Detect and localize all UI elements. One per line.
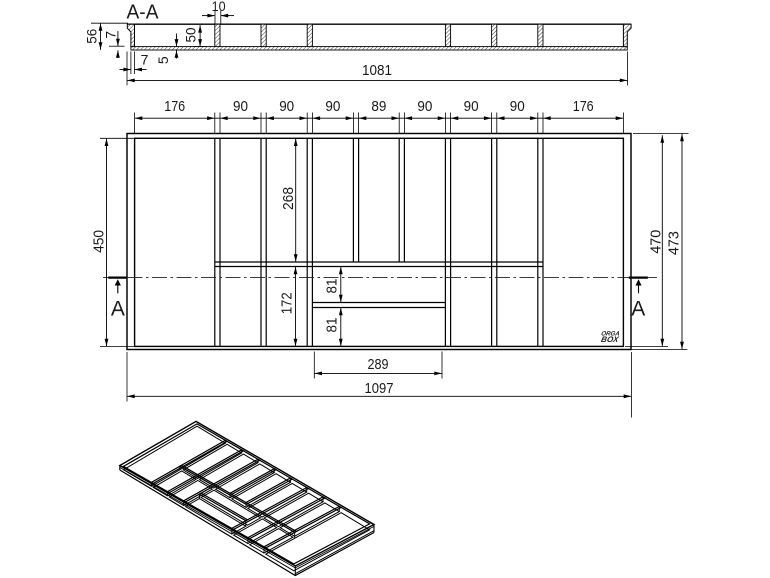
svg-text:1097: 1097 — [365, 380, 394, 397]
svg-text:90: 90 — [417, 98, 432, 115]
svg-text:89: 89 — [371, 98, 386, 115]
svg-text:172: 172 — [278, 292, 295, 314]
svg-text:A-A: A-A — [127, 1, 159, 24]
svg-text:7: 7 — [141, 51, 149, 67]
svg-text:268: 268 — [280, 187, 297, 210]
svg-text:56: 56 — [83, 28, 99, 43]
svg-text:176: 176 — [164, 98, 185, 115]
svg-text:90: 90 — [279, 98, 294, 115]
svg-text:A: A — [631, 297, 645, 320]
svg-text:470: 470 — [647, 230, 664, 254]
svg-text:176: 176 — [573, 98, 594, 115]
svg-text:A: A — [111, 297, 125, 320]
svg-text:81: 81 — [323, 318, 340, 333]
svg-text:50: 50 — [183, 27, 199, 42]
svg-text:5: 5 — [155, 56, 171, 64]
svg-text:10: 10 — [212, 0, 226, 14]
svg-text:90: 90 — [510, 98, 525, 115]
svg-text:7: 7 — [102, 31, 118, 39]
svg-text:473: 473 — [665, 231, 682, 255]
svg-text:BOX: BOX — [600, 335, 620, 344]
svg-text:450: 450 — [90, 230, 107, 253]
svg-text:81: 81 — [323, 279, 340, 294]
svg-text:1081: 1081 — [362, 62, 392, 79]
svg-text:90: 90 — [325, 98, 340, 115]
svg-text:90: 90 — [464, 98, 479, 115]
svg-text:90: 90 — [233, 98, 248, 115]
svg-text:289: 289 — [368, 356, 389, 373]
